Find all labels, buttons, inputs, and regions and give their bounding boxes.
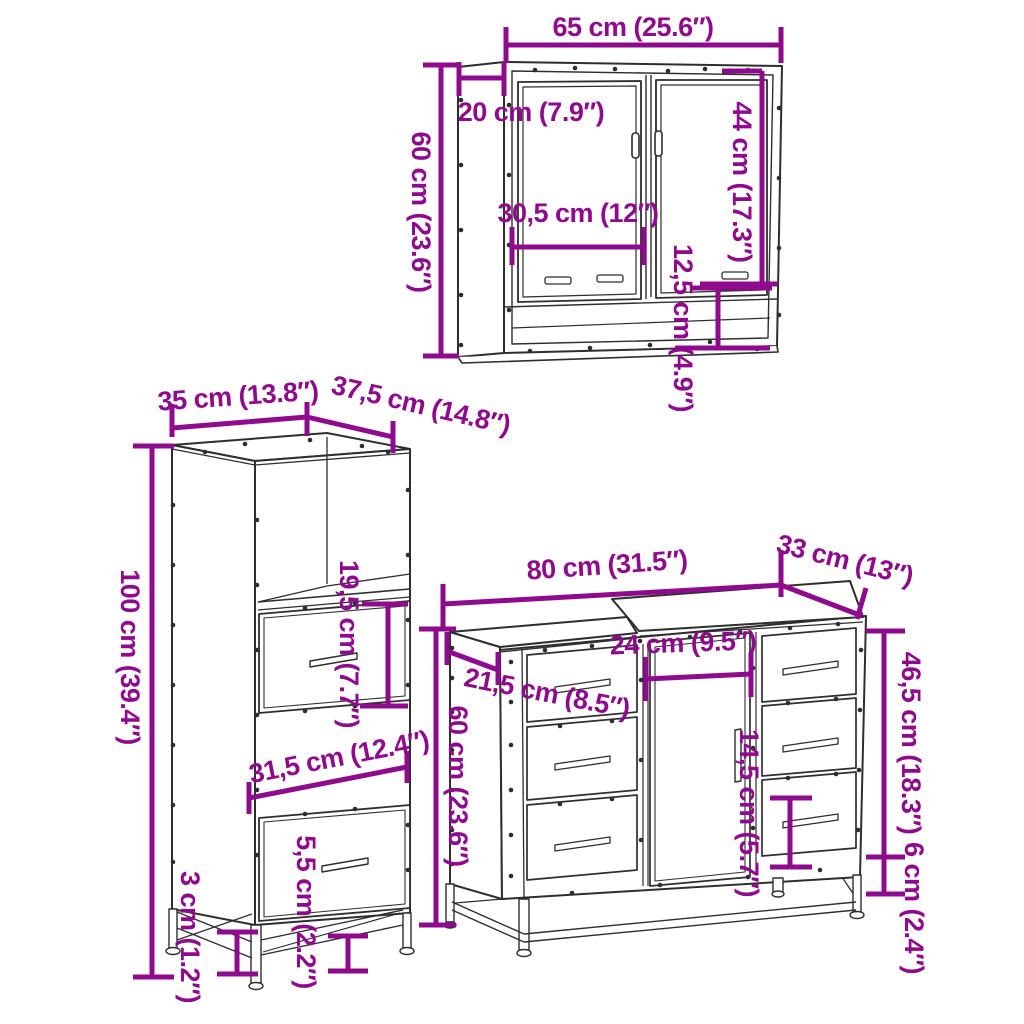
vanity-height-label: 60 cm (23.6″) — [443, 705, 473, 866]
mirror-width-label: 65 cm (25.6″) — [552, 12, 713, 42]
tall-compartment-height-label: 19,5 cm (7.7″) — [334, 560, 364, 728]
tall-height-label: 100 cm (39.4″) — [115, 569, 145, 745]
vanity-clearance-label: 6 cm (2.4″) — [899, 842, 929, 974]
mirror-door-handle-right — [655, 131, 662, 156]
mirror-door-handle-left — [632, 133, 639, 158]
tall-clearance-label: 3 cm (1.2″) — [175, 871, 205, 1003]
mirror-inner-width-label: 30,5 cm (12″) — [497, 198, 658, 228]
mirror-depth-label: 20 cm (7.9″) — [458, 97, 605, 127]
mirror-door-height-label: 44 cm (17.3″) — [727, 101, 757, 262]
diagram-page: 65 cm (25.6″) 20 cm (7.9″) 60 cm (23.6″)… — [0, 0, 1024, 1024]
diagram-canvas: 65 cm (25.6″) 20 cm (7.9″) 60 cm (23.6″)… — [0, 0, 1024, 1024]
vanity-width-label: 80 cm (31.5″) — [526, 544, 689, 585]
mirror-height-label: 60 cm (23.6″) — [406, 131, 436, 292]
vanity-door-width-label: 24 cm (9.5″) — [609, 625, 756, 660]
mirror-shelf-height-label: 12,5 cm (4.9″) — [668, 244, 698, 412]
tall-width-label: 35 cm (13.8″) — [157, 375, 320, 416]
vanity-column-height-label: 46,5 cm (18.3″) — [896, 652, 926, 835]
tall-drawer-gap-label: 5,5 cm (2.2″) — [291, 835, 321, 989]
vanity-drawer-height-label: 14,5 cm (5.7″) — [734, 729, 764, 897]
